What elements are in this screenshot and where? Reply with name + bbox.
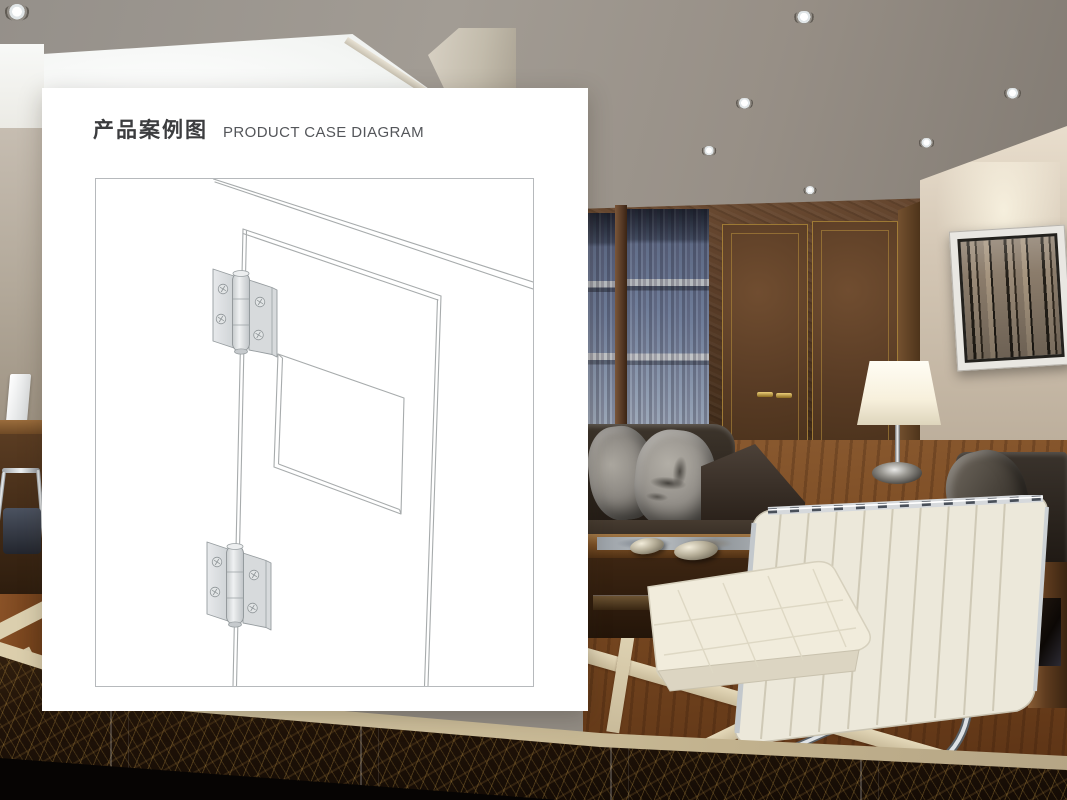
recessed-spotlight bbox=[4, 4, 30, 21]
card-title-en: PRODUCT CASE DIAGRAM bbox=[223, 124, 424, 141]
hinge-bottom bbox=[207, 542, 271, 630]
recessed-spotlight bbox=[1003, 88, 1022, 99]
desk-top bbox=[0, 420, 44, 434]
floor-lamp-shade bbox=[857, 361, 941, 425]
office-chair-frame bbox=[2, 468, 40, 473]
door-handle bbox=[757, 392, 773, 397]
product-case-card: 产品案例图 PRODUCT CASE DIAGRAM bbox=[42, 88, 588, 711]
recessed-spotlight bbox=[735, 98, 754, 109]
bookcase-glass-pane bbox=[627, 209, 709, 442]
diagram-frame bbox=[95, 178, 534, 687]
wood-door-right bbox=[812, 221, 898, 467]
door-handle bbox=[776, 393, 792, 398]
recessed-spotlight bbox=[701, 146, 717, 156]
card-title: 产品案例图 PRODUCT CASE DIAGRAM bbox=[93, 114, 424, 144]
card-title-zh: 产品案例图 bbox=[93, 114, 208, 144]
bookcase-glass-pane bbox=[585, 213, 615, 439]
floor-lamp-base bbox=[872, 462, 922, 484]
chair-seat-cushion bbox=[648, 562, 870, 691]
bookcase-wood-stile bbox=[615, 205, 627, 445]
framed-artwork bbox=[949, 225, 1067, 372]
door-hinge-diagram bbox=[96, 179, 533, 686]
desk-monitor bbox=[6, 374, 31, 424]
office-chair-seat bbox=[3, 508, 41, 554]
recessed-spotlight bbox=[793, 11, 815, 24]
stage: 产品案例图 PRODUCT CASE DIAGRAM bbox=[0, 0, 1067, 800]
left-cove-glow bbox=[0, 44, 44, 136]
recessed-spotlight bbox=[803, 186, 817, 195]
hinge-top bbox=[213, 269, 277, 357]
floor-lamp-stem bbox=[895, 425, 900, 467]
recessed-panel bbox=[274, 354, 404, 514]
artwork-canvas bbox=[957, 233, 1064, 363]
recessed-spotlight bbox=[918, 138, 935, 148]
